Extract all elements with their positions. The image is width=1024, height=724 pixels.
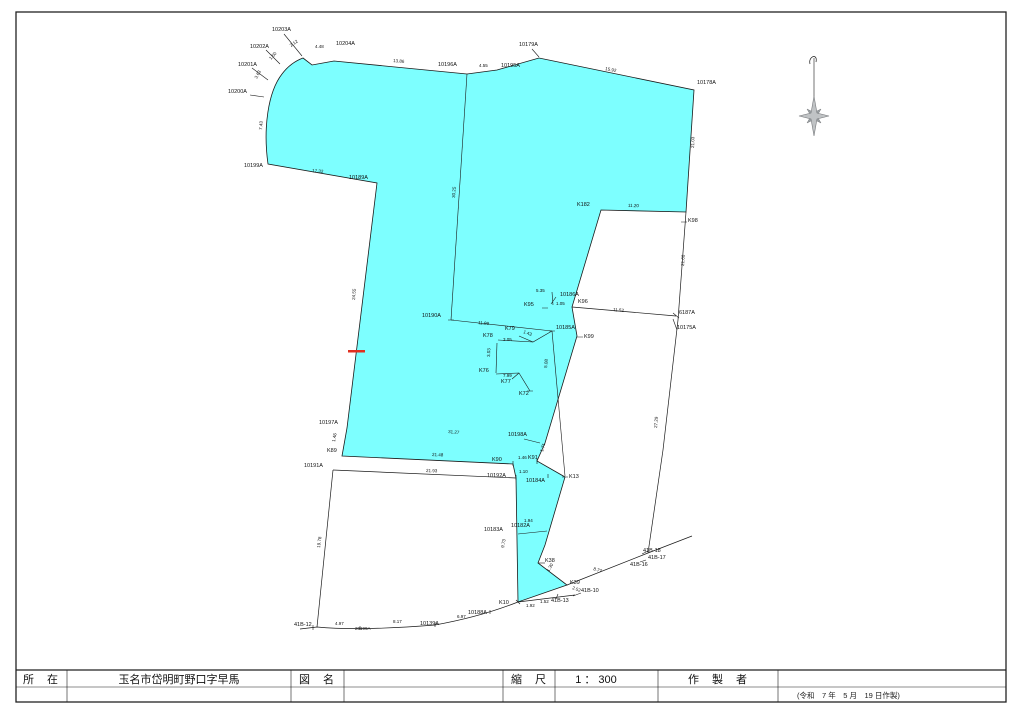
map-label: 10195A: [501, 63, 520, 69]
map-label: 41B-10: [581, 588, 599, 594]
map-label: 3.03: [486, 348, 491, 357]
scale-label: 縮 尺: [511, 672, 547, 686]
map-label: K95: [524, 302, 534, 308]
map-label: K72: [519, 391, 529, 397]
map-label: 5.35: [536, 288, 545, 293]
map-label: 1.52: [540, 599, 549, 604]
map-label: 30.25: [451, 186, 457, 198]
map-label: 10204A: [336, 41, 355, 47]
map-label: 5.08: [543, 358, 549, 368]
map-label: 1.92: [526, 603, 535, 608]
map-label: 4.55: [479, 63, 488, 68]
map-label: 3.05: [503, 337, 512, 342]
map-label: K96: [578, 299, 588, 305]
map-label: 10188A: [468, 610, 487, 616]
map-label: K99: [584, 334, 594, 340]
map-label: 21.93: [426, 468, 438, 473]
map-label: 10196A: [438, 62, 457, 68]
map-label: K89: [327, 448, 337, 454]
map-label: K77: [501, 379, 511, 385]
map-label: K79: [505, 326, 515, 332]
map-label: 7.99: [503, 373, 512, 378]
north-needle-hook: [810, 56, 817, 64]
map-label: 11.52: [613, 307, 625, 313]
location-label: 所 在: [23, 673, 59, 686]
map-label: K90: [492, 457, 502, 463]
survey-map-page: 10203A2.1210202A1.5010201A3.6310200A7.43…: [0, 0, 1024, 724]
map-canvas: 10203A2.1210202A1.5010201A3.6310200A7.43…: [0, 0, 1024, 724]
map-label: 10191A: [304, 463, 323, 469]
map-label: 4.48: [315, 44, 324, 49]
map-label: 41B-12: [294, 622, 312, 628]
map-label: K13: [569, 474, 579, 480]
map-label: 1.05: [556, 301, 565, 306]
map-drawing: 10203A2.1210202A1.5010201A3.6310200A7.43…: [228, 27, 716, 631]
map-label: 11.20: [628, 203, 640, 208]
map-label: 41B-13: [551, 598, 569, 604]
map-label: 41B-18: [643, 548, 661, 554]
map-label: 10183A: [484, 527, 503, 533]
map-label: 10139A: [420, 621, 439, 627]
map-label: 9.73: [500, 538, 507, 548]
map-label: 10192A: [487, 473, 506, 479]
title-block: 所 在 玉名市岱明町野口字早馬 図 名 縮 尺 1 ： 300 作 製 者 (令…: [16, 670, 1006, 702]
map-label: K78: [483, 333, 493, 339]
map-label: 10178A: [697, 80, 716, 86]
map-label: 13.86: [393, 58, 405, 64]
map-label: 10199A: [244, 163, 263, 169]
map-label: K98: [688, 218, 698, 224]
map-label: 31.27: [448, 429, 460, 435]
date-note: (令和 7 年 5 月 19 日作製): [797, 690, 900, 700]
map-name-label: 図 名: [299, 672, 335, 686]
map-label: 3.63: [253, 69, 262, 80]
map-label: 21.48: [432, 452, 444, 457]
map-label: 17.32: [312, 168, 324, 174]
highlighted-parcel: [266, 58, 694, 602]
map-label: 6187A: [679, 310, 695, 316]
map-label: 10175A: [677, 325, 696, 331]
map-label: 10197A: [319, 420, 338, 426]
map-label: 1.46: [518, 455, 527, 460]
map-label: 10182A: [511, 523, 530, 529]
author-label: 作 製 者: [688, 672, 748, 686]
map-label: 10186A: [560, 292, 579, 298]
map-label: 21.03: [690, 136, 695, 148]
map-label: 10203A: [272, 27, 291, 33]
map-label: 1.71: [539, 442, 546, 452]
location-value: 玉名市岱明町野口字早馬: [119, 672, 240, 686]
map-label: 8.17: [393, 619, 402, 624]
map-label: 41B-16: [630, 562, 648, 568]
map-label: 10198A: [508, 432, 527, 438]
map-label: 10179A: [519, 42, 538, 48]
map-label: 21.60: [680, 254, 686, 266]
map-label: 1.10: [519, 469, 528, 474]
map-label: 19.78: [316, 536, 322, 548]
red-annotation-mark: [348, 350, 365, 353]
map-label: K91: [528, 455, 538, 461]
map-label: 10201A: [238, 62, 257, 68]
map-label: 4.97: [335, 621, 344, 626]
map-label: 10202A: [250, 44, 269, 50]
map-label: 20199A: [355, 626, 371, 631]
map-label: 41B-17: [648, 555, 666, 561]
map-label: 10189A: [349, 175, 368, 181]
map-label: 1.46: [331, 432, 338, 442]
map-label: K10: [499, 600, 509, 606]
map-label: K182: [577, 202, 590, 208]
map-label: 27.29: [653, 416, 659, 428]
scale-value: 1 ： 300: [575, 674, 617, 686]
map-label: 10185A: [556, 325, 575, 331]
map-label: 7.43: [258, 120, 264, 130]
map-label: 6.97: [457, 614, 466, 619]
map-label: 24.55: [351, 288, 357, 300]
compass-cardinal-star: [799, 96, 829, 136]
map-label: 10200A: [228, 89, 247, 95]
map-label: K76: [479, 368, 489, 374]
map-label: 1.50: [268, 50, 278, 60]
map-label: 10184A: [526, 478, 545, 484]
compass-rose: [799, 56, 829, 136]
map-label: 10190A: [422, 313, 441, 319]
